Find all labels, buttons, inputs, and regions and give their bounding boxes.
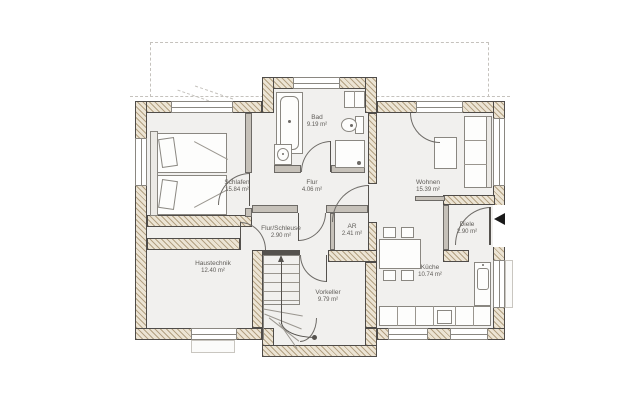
room-name: Schlafen	[224, 179, 249, 187]
toilet-bowl	[341, 118, 357, 132]
wall-cellar-east	[365, 262, 377, 328]
bath-shelf-divider	[354, 91, 355, 108]
window-utility-bottom	[191, 328, 237, 340]
window-bedroom-top	[171, 101, 233, 113]
room-area: 2.90 m²	[261, 233, 301, 241]
room-name: AR	[342, 223, 362, 231]
room-name: Küche	[418, 264, 442, 272]
room-label-bad: Bad 9.19 m²	[307, 114, 327, 130]
wall-cellar-north	[328, 250, 377, 262]
toilet-flush	[350, 124, 353, 127]
sofa-seats	[464, 116, 487, 188]
stair-direction-arrow-icon	[278, 255, 284, 262]
window-kitchen-bottom-1	[388, 328, 428, 340]
room-name: Wohnen	[416, 179, 440, 187]
room-name: Haustechnik	[195, 260, 231, 268]
window-kitchen-right	[493, 260, 505, 308]
room-name: Flur	[302, 179, 322, 187]
room-label-kueche: Küche 10.74 m²	[418, 264, 442, 280]
room-name: Vorkeller	[315, 289, 340, 297]
wall-utility-north	[147, 238, 240, 250]
lightwell-utility	[191, 340, 235, 353]
partition-bath-south-left	[274, 165, 301, 173]
room-label-ar: AR 2.41 m²	[342, 223, 362, 239]
exterior-wall-bay-left	[262, 77, 274, 113]
wall-hall-south	[443, 250, 469, 262]
room-name: Flur/Schleuse	[261, 225, 301, 233]
room-area: 9.19 m²	[307, 122, 327, 130]
room-area: 9.79 m²	[315, 297, 340, 305]
sink-tap	[482, 264, 484, 266]
room-label-schlafen: Schlafen 15.84 m²	[224, 179, 249, 195]
door-leaf-entrance	[489, 207, 491, 245]
stair-walkline-start	[312, 335, 317, 340]
counter-divider-5	[473, 306, 474, 326]
room-area: 2.90 m²	[457, 229, 477, 237]
entrance-opening	[493, 205, 505, 247]
room-area: 10.74 m²	[418, 272, 442, 280]
sofa-seam-2	[464, 164, 487, 165]
stair-walkline	[281, 262, 282, 324]
room-label-diele: Diele 2.90 m²	[457, 221, 477, 237]
room-label-flur-schleuse: Flur/Schleuse 2.90 m²	[261, 225, 301, 241]
lintel-living	[415, 196, 445, 201]
room-area: 4.06 m²	[302, 187, 322, 195]
kitchen-counter-bottom	[379, 306, 491, 326]
room-area: 15.39 m²	[416, 187, 440, 195]
counter-divider-4	[455, 306, 456, 326]
door-leaf-living	[368, 185, 369, 222]
room-name: Bad	[307, 114, 327, 122]
lightwell-kitchen	[505, 260, 513, 308]
wall-living-west-upper	[368, 113, 377, 184]
stove	[437, 310, 452, 324]
room-label-flur: Flur 4.06 m²	[302, 179, 322, 195]
chair-1	[383, 227, 396, 238]
dining-table	[379, 239, 421, 269]
sofa-seam-1	[464, 140, 487, 141]
window-kitchen-bottom-2	[450, 328, 488, 340]
room-label-wohnen: Wohnen 15.39 m²	[416, 179, 440, 195]
wall-bedroom-south	[147, 215, 252, 227]
bathtub-drain	[288, 120, 291, 123]
window-bedroom-left	[135, 138, 147, 186]
exterior-wall-cellar-bottom	[262, 345, 377, 357]
entrance-arrow-icon	[494, 213, 505, 225]
floor-plan-canvas: Schlafen 15.84 m² Bad 9.19 m² Flur 4.06 …	[0, 0, 641, 400]
bathtub-basin	[280, 96, 299, 150]
room-label-haustechnik: Haustechnik 12.40 m²	[195, 260, 231, 276]
shower-drain	[357, 161, 361, 165]
door-leaf-utility	[240, 222, 241, 250]
room-name: Diele	[457, 221, 477, 229]
window-bath-top	[293, 77, 340, 89]
chair-2	[401, 227, 414, 238]
room-area: 2.41 m²	[342, 231, 362, 239]
partition-lock-north-left	[252, 205, 298, 213]
room-label-vorkeller: Vorkeller 9.79 m²	[315, 289, 340, 305]
door-leaf-cellar	[326, 255, 327, 282]
chair-4	[401, 270, 414, 281]
wall-utility-east	[252, 250, 263, 328]
sink	[477, 268, 489, 290]
partition-hall-west	[443, 205, 449, 250]
counter-divider-2	[415, 306, 416, 326]
door-leaf-bath	[330, 141, 331, 172]
partition-bedroom-east-lower	[245, 208, 252, 217]
chair-3	[383, 270, 396, 281]
partition-bedroom-east-upper	[245, 113, 252, 173]
window-living-top	[416, 101, 463, 113]
exterior-wall-bay-right	[365, 77, 377, 113]
counter-divider-1	[397, 306, 398, 326]
counter-divider-3	[433, 306, 434, 326]
window-living-right	[493, 118, 505, 186]
room-area: 12.40 m²	[195, 268, 231, 276]
exterior-wall-left	[135, 101, 147, 340]
washbasin-tap	[282, 153, 284, 155]
room-area: 15.84 m²	[224, 187, 249, 195]
wall-hall-north	[443, 195, 495, 205]
